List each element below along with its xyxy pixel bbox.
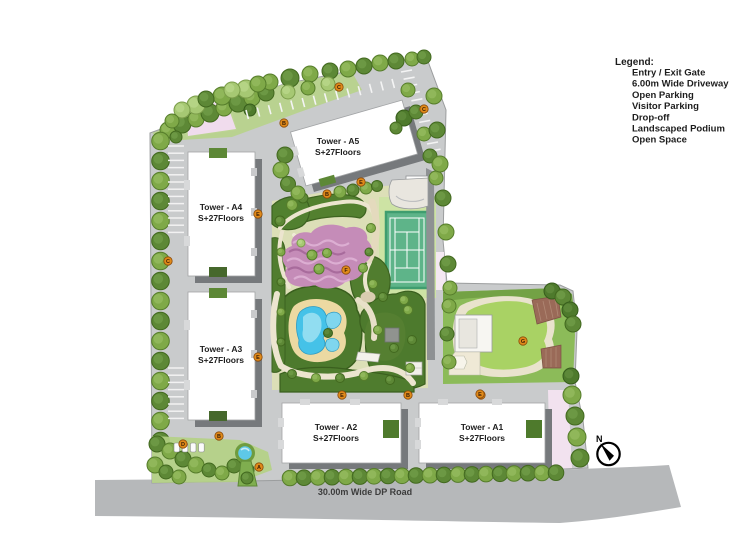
svg-text:Visitor Parking: Visitor Parking (632, 101, 699, 112)
svg-text:B: B (406, 393, 410, 399)
svg-text:G: G (521, 339, 525, 345)
svg-text:S+27Floors: S+27Floors (315, 147, 361, 157)
svg-text:S+27Floors: S+27Floors (459, 433, 505, 443)
svg-text:N: N (596, 434, 603, 444)
svg-text:Tower - A2: Tower - A2 (315, 422, 358, 432)
svg-text:D: D (181, 442, 185, 448)
svg-text:Tower - A5: Tower - A5 (317, 136, 360, 146)
svg-text:6.00m Wide Driveway: 6.00m Wide Driveway (632, 79, 729, 90)
svg-text:E: E (478, 392, 482, 398)
svg-text:Tower - A1: Tower - A1 (461, 422, 504, 432)
svg-text:30.00m Wide DP Road: 30.00m Wide DP Road (318, 487, 412, 497)
svg-text:S+27Floors: S+27Floors (198, 213, 244, 223)
svg-text:Tower - A3: Tower - A3 (200, 344, 243, 354)
svg-text:Legend:: Legend: (615, 57, 654, 68)
svg-text:Landscaped Podium: Landscaped Podium (632, 124, 725, 135)
svg-text:E: E (256, 355, 260, 361)
svg-text:Drop-off: Drop-off (632, 112, 670, 123)
svg-text:E: E (256, 212, 260, 218)
svg-text:C: C (166, 259, 170, 265)
svg-text:Entry / Exit Gate: Entry / Exit Gate (632, 68, 705, 79)
svg-text:Open Space: Open Space (632, 135, 687, 146)
svg-text:C: C (422, 107, 426, 113)
svg-text:Open Parking: Open Parking (632, 90, 694, 101)
svg-text:C: C (337, 85, 341, 91)
svg-text:B: B (282, 121, 286, 127)
svg-text:A: A (257, 465, 261, 471)
svg-text:E: E (359, 180, 363, 186)
svg-text:E: E (340, 393, 344, 399)
svg-text:B: B (217, 434, 221, 440)
svg-text:Tower - A4: Tower - A4 (200, 202, 243, 212)
svg-text:S+27Floors: S+27Floors (313, 433, 359, 443)
svg-text:B: B (325, 192, 329, 198)
svg-text:S+27Floors: S+27Floors (198, 355, 244, 365)
